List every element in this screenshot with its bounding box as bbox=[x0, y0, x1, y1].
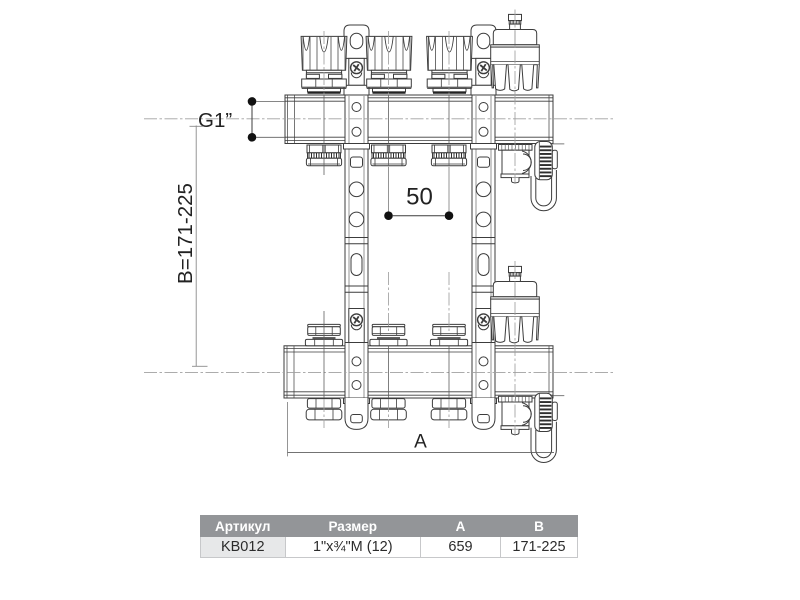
svg-text:B=171-225: B=171-225 bbox=[174, 183, 197, 284]
svg-text:50: 50 bbox=[406, 184, 433, 211]
svg-text:G1”: G1” bbox=[198, 109, 232, 132]
svg-text:A: A bbox=[414, 432, 427, 453]
